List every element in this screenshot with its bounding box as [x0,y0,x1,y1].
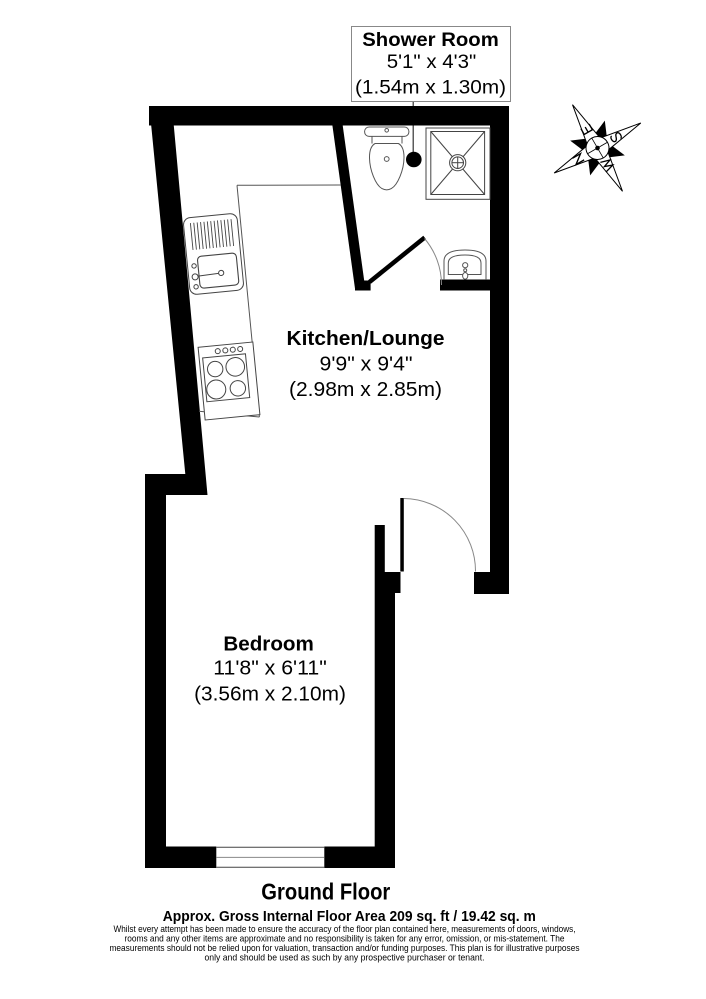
svg-text:Bedroom: Bedroom [223,634,314,656]
svg-text:(1.54m x 1.30m): (1.54m x 1.30m) [355,77,506,99]
svg-text:rooms and any other items are: rooms and any other items are approximat… [125,934,565,944]
svg-text:9'9" x 9'4": 9'9" x 9'4" [320,353,413,375]
svg-text:only and should be used as suc: only and should be used as such by any p… [205,953,485,963]
svg-text:5'1" x 4'3": 5'1" x 4'3" [387,51,477,73]
svg-text:Shower Room: Shower Room [362,29,499,51]
svg-text:measurements should not be rel: measurements should not be relied upon f… [110,943,580,953]
svg-text:Whilst every attempt has been: Whilst every attempt has been made to en… [114,924,576,934]
svg-text:(3.56m x 2.10m): (3.56m x 2.10m) [194,683,346,705]
svg-text:Approx. Gross Internal Floor A: Approx. Gross Internal Floor Area 209 sq… [163,908,536,925]
svg-text:11'8" x 6'11": 11'8" x 6'11" [213,658,327,680]
svg-text:Ground Floor: Ground Floor [261,879,390,905]
svg-text:Kitchen/Lounge: Kitchen/Lounge [287,328,445,350]
svg-text:(2.98m x 2.85m): (2.98m x 2.85m) [289,379,442,401]
